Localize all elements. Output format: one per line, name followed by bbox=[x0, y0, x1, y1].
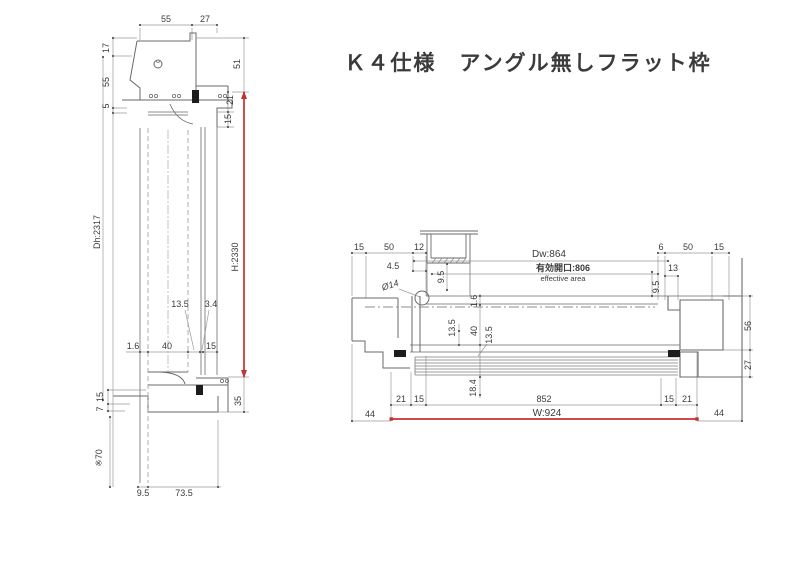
dim-plan-13-5-a: 13.5 bbox=[447, 319, 457, 337]
dim-plan-15-bl: 15 bbox=[414, 394, 424, 404]
vertical-section-body-lines bbox=[113, 110, 217, 487]
plan-door-leaf-band bbox=[415, 357, 678, 375]
dim-right-15: 15 bbox=[223, 114, 233, 124]
dim-below-floor-70: ※70 bbox=[94, 449, 104, 467]
dim-mid-3-4: 3.4 bbox=[205, 299, 218, 309]
dim-door-height: Dh:2317 bbox=[92, 215, 102, 249]
dim-left-5: 5 bbox=[101, 103, 111, 108]
dim-frame-width: W:924 bbox=[533, 408, 562, 419]
dim-mid-40: 40 bbox=[162, 341, 172, 351]
dim-bottom-73-5: 73.5 bbox=[175, 488, 193, 498]
dim-plan-15-right: 15 bbox=[714, 242, 724, 252]
dim-sill-35: 35 bbox=[233, 396, 243, 406]
dim-left-17: 17 bbox=[101, 43, 111, 53]
frame-height-red-dimension bbox=[241, 91, 247, 378]
cad-drawing-canvas: Ｋ４仕様 アングル無しフラット枠 55 27 17 55 5 51 21 15 … bbox=[0, 0, 800, 565]
drawing-title: Ｋ４仕様 アングル無しフラット枠 bbox=[344, 51, 711, 75]
dim-mid-1-6: 1.6 bbox=[127, 341, 140, 351]
dim-plan-18-4: 18.4 bbox=[468, 379, 478, 397]
plan-section-hardware bbox=[394, 350, 680, 357]
dim-plan-21-br: 21 bbox=[682, 394, 692, 404]
label-effective-area: effective area bbox=[541, 274, 587, 283]
dim-plan-13: 13 bbox=[668, 263, 678, 273]
vertical-section-labels: 55 27 17 55 5 51 21 15 Dh:2317 H:2330 13… bbox=[92, 14, 243, 498]
dim-door-width: Dw:864 bbox=[532, 249, 566, 260]
dim-plan-4-5: 4.5 bbox=[387, 261, 400, 271]
dim-plan-40: 40 bbox=[469, 326, 479, 336]
dim-plan-1-6: 1.6 bbox=[469, 295, 479, 308]
cad-drawing-page: Ｋ４仕様 アングル無しフラット枠 55 27 17 55 5 51 21 15 … bbox=[0, 0, 800, 565]
vertical-section-dim-ticks bbox=[102, 24, 245, 488]
dim-top-27: 27 bbox=[200, 14, 210, 24]
dim-frame-height: H:2330 bbox=[230, 242, 240, 271]
dim-plan-27: 27 bbox=[743, 360, 753, 370]
dim-mid-13-5: 13.5 bbox=[171, 299, 189, 309]
dim-right-21: 21 bbox=[225, 95, 235, 105]
dim-plan-12: 12 bbox=[414, 242, 424, 252]
dim-plan-9-5-right: 9.5 bbox=[651, 281, 661, 294]
dim-plan-6: 6 bbox=[658, 242, 663, 252]
dim-effective-opening: 有効開口:806 bbox=[536, 262, 590, 273]
dim-right-51: 51 bbox=[232, 59, 242, 69]
dim-plan-9-5-left: 9.5 bbox=[436, 271, 446, 284]
dim-mid-15: 15 bbox=[206, 341, 216, 351]
vertical-section-dimension-lines bbox=[103, 25, 249, 487]
dim-top-55: 55 bbox=[161, 14, 171, 24]
dim-sill-7: 7 bbox=[95, 406, 105, 411]
vertical-section-profile bbox=[113, 33, 232, 412]
dim-plan-15-left: 15 bbox=[354, 242, 364, 252]
dim-plan-21-bl: 21 bbox=[396, 394, 406, 404]
dim-plan-852: 852 bbox=[536, 394, 551, 404]
dim-left-55: 55 bbox=[101, 77, 111, 87]
dim-plan-50-right: 50 bbox=[683, 242, 693, 252]
dim-plan-56: 56 bbox=[743, 321, 753, 331]
dim-plan-13-5-b: 13.5 bbox=[484, 326, 494, 344]
dim-sill-15: 15 bbox=[95, 392, 105, 402]
dim-plan-50-left: 50 bbox=[384, 242, 394, 252]
dim-bottom-9-5: 9.5 bbox=[137, 488, 150, 498]
plan-section-labels: 15 50 12 4.5 Ø14 9.5 Dw:864 有効開口:806 eff… bbox=[354, 242, 753, 419]
dim-plan-15-br: 15 bbox=[664, 394, 674, 404]
dim-plan-44-right: 44 bbox=[714, 408, 724, 418]
dim-plan-44-left: 44 bbox=[365, 409, 375, 419]
dim-hinge-diameter: Ø14 bbox=[379, 278, 399, 293]
